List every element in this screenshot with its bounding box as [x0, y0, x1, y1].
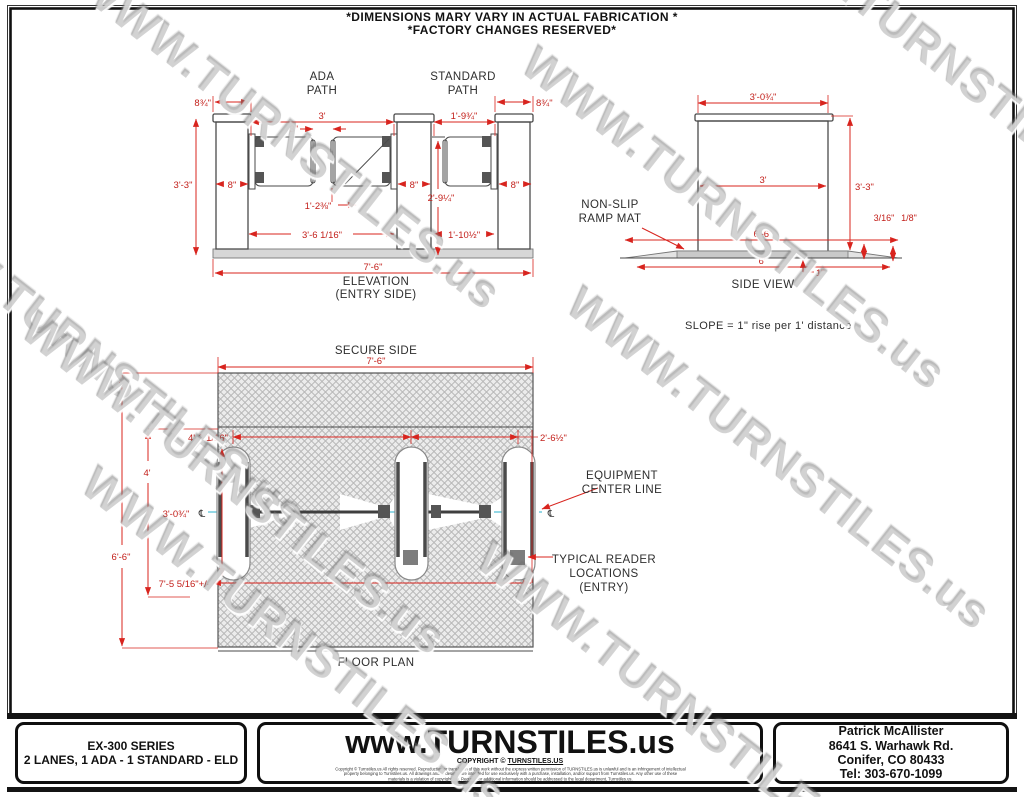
standard-path-label-1: STANDARD: [430, 71, 496, 83]
dim-wing-gap: 3": [289, 124, 298, 135]
elevation-view: ADA PATH STANDARD PATH 8¾" 8¾" 3' 1'-9¾": [174, 71, 553, 301]
fine-print-line-3: materials is a violation of copyright la…: [335, 777, 685, 782]
equipment-cl-label-1: EQUIPMENT: [586, 470, 658, 482]
side-view-title: SIDE VIEW: [731, 279, 794, 291]
dim-side-top: 3'-0¾": [750, 92, 777, 103]
dim-cap-right: 8¾": [536, 98, 553, 109]
company-title-box: www.TURNSTILES.us COPYRIGHT © TURNSTILES…: [257, 722, 763, 784]
contact-phone: Tel: 303-670-1099: [840, 767, 943, 781]
copyright-line: COPYRIGHT © TURNSTILES.US: [457, 758, 563, 766]
copyright-prefix: COPYRIGHT ©: [457, 758, 508, 765]
reader-right: [510, 550, 525, 565]
dim-wing-offset: 1'-2⅜": [305, 201, 332, 212]
dim-edge: 1/8": [901, 213, 917, 223]
dim-ramp-overall: 6'-6": [754, 229, 773, 240]
note-line-2: *FACTORY CHANGES RESERVED*: [408, 23, 617, 37]
dim-std-height: 2'-9¼": [428, 193, 455, 204]
floor-plan: 7'-6" 4'-2 1/16" 2'-6½" 4' 6'-6" 3'-0¾" …: [112, 345, 663, 669]
elevation-ground: [213, 249, 533, 258]
dim-side-depth: 3': [759, 175, 766, 186]
contact-box: Patrick McAllister 8641 S. Warhawk Rd. C…: [773, 722, 1009, 784]
dim-plan-total: 7'-5 5/16"+/-: [159, 579, 210, 590]
dim-elevation-height: 3'-3": [174, 180, 193, 191]
dim-elevation-overall: 7'-6": [364, 262, 383, 273]
legal-fine-print: Copyright © Turnstiles.us All rights res…: [335, 767, 685, 782]
secure-side-label: SECURE SIDE: [335, 345, 417, 357]
dim-post-right-width: 8": [511, 180, 520, 191]
dim-std-opening: 1'-9¾": [451, 111, 478, 122]
standard-path-label-2: PATH: [448, 85, 479, 97]
drawing-sheet: *DIMENSIONS MARY VARY IN ACTUAL FABRICAT…: [0, 0, 1024, 797]
dim-std-cc: 1'-10½": [448, 230, 480, 241]
reader-label-1: TYPICAL READER: [552, 554, 656, 566]
dim-post-left-width: 8": [228, 180, 237, 191]
dim-ada-opening: 3': [318, 111, 325, 122]
ada-path-label-2: PATH: [307, 85, 338, 97]
equipment-cl-label-2: CENTER LINE: [582, 484, 662, 496]
centerline-symbol-right: ℄: [547, 509, 555, 520]
floor-plan-title: FLOOR PLAN: [338, 657, 415, 669]
standard-lane-cabinet: [432, 134, 497, 189]
elevation-title: ELEVATION: [343, 276, 409, 288]
series-title-box: EX-300 SERIES 2 LANES, 1 ADA - 1 STANDAR…: [15, 722, 247, 784]
elevation-subtitle: (ENTRY SIDE): [335, 289, 416, 301]
dim-post-middle-width: 8": [410, 180, 419, 191]
title-block-strip: EX-300 SERIES 2 LANES, 1 ADA - 1 STANDAR…: [7, 713, 1017, 792]
technical-drawing-canvas: *DIMENSIONS MARY VARY IN ACTUAL FABRICAT…: [0, 0, 1024, 797]
dim-mat-height: 1": [816, 268, 825, 279]
slope-note: SLOPE = 1" rise per 1' distance: [685, 320, 852, 332]
dim-plan-depth: 4': [143, 468, 150, 479]
dim-plan-overall: 7'-6": [367, 356, 386, 367]
company-website: www.TURNSTILES.us: [345, 726, 675, 758]
dim-ramp-length: 6': [758, 256, 765, 267]
ada-path-label-1: ADA: [310, 71, 335, 83]
dim-right-lane-cc: 2'-6½": [540, 433, 567, 444]
dim-lip: 3/16": [874, 213, 895, 223]
dim-ada-cc: 3'-6 1/16": [302, 230, 342, 241]
dim-cap-left: 8¾": [194, 98, 211, 109]
ada-lane-cabinet: [249, 134, 397, 189]
centerline-symbol-left: ℄: [198, 509, 206, 520]
strip-bottom-rule: [7, 787, 1017, 792]
note-line-1: *DIMENSIONS MARY VARY IN ACTUAL FABRICAT…: [346, 10, 678, 24]
contact-street: 8641 S. Warhawk Rd.: [829, 739, 954, 753]
reader-middle: [403, 550, 418, 565]
dim-lane-width: 3'-0¾": [163, 509, 190, 520]
reader-label-3: (ENTRY): [579, 582, 628, 594]
series-name: EX-300 SERIES: [87, 739, 174, 753]
dim-side-height: 3'-3": [855, 182, 874, 193]
reader-label-2: LOCATIONS: [569, 568, 638, 580]
contact-city: Conifer, CO 80433: [838, 753, 945, 767]
fabrication-notes: *DIMENSIONS MARY VARY IN ACTUAL FABRICAT…: [346, 10, 678, 37]
nonslip-label-1: NON-SLIP: [581, 199, 639, 211]
side-view: 3'-0¾" 3' 3'-3" 6'-6" 6' 1" 3/16" 1/8" N…: [579, 92, 917, 332]
dim-plan-length: 6'-6": [112, 552, 131, 563]
copyright-site: TURNSTILES.US: [508, 758, 564, 765]
series-config: 2 LANES, 1 ADA - 1 STANDARD - ELD: [24, 753, 238, 767]
nonslip-label-2: RAMP MAT: [579, 213, 642, 225]
contact-name: Patrick McAllister: [839, 724, 944, 738]
dim-left-lane-cc: 4'-2 1/16": [188, 433, 228, 444]
